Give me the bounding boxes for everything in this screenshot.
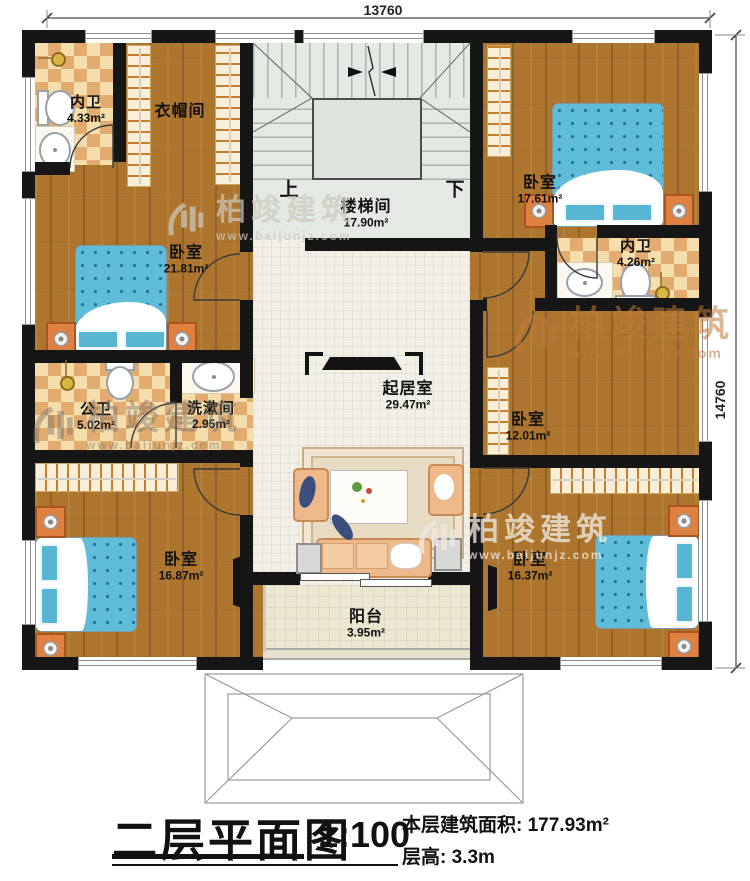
wall bbox=[253, 572, 300, 585]
stair-right-flight bbox=[420, 98, 470, 180]
window bbox=[572, 30, 655, 43]
sofa-cushion bbox=[322, 543, 354, 569]
page-title: 二层平面图 bbox=[112, 804, 352, 869]
bed-pillows bbox=[671, 536, 698, 628]
window bbox=[22, 198, 35, 325]
window bbox=[560, 657, 662, 670]
sliding-door-panel bbox=[360, 579, 432, 587]
wall bbox=[240, 300, 253, 398]
shower-head-icon bbox=[51, 52, 66, 67]
wall bbox=[483, 298, 487, 311]
dimension-top: 13760 bbox=[364, 2, 403, 18]
wall bbox=[470, 300, 483, 468]
sink bbox=[192, 361, 235, 392]
bed-pillows bbox=[36, 538, 63, 631]
stair-up-label: 上 bbox=[279, 175, 298, 202]
bed-bottom-left bbox=[35, 537, 137, 632]
stair-down-label: 下 bbox=[445, 175, 464, 202]
wall bbox=[240, 43, 253, 252]
room-label-wash-room: 洗漱间 2.95m² bbox=[187, 401, 235, 431]
tv-bedroom-bl bbox=[233, 556, 242, 608]
window bbox=[699, 500, 712, 622]
room-label-bedroom-mr: 卧室 12.01m² bbox=[506, 411, 551, 442]
window bbox=[699, 317, 712, 442]
side-table-left bbox=[296, 543, 322, 574]
wall bbox=[305, 238, 470, 251]
bed-sheet bbox=[646, 536, 674, 628]
wall bbox=[170, 363, 182, 403]
wall bbox=[428, 572, 470, 585]
bedroom-tr-closet bbox=[487, 45, 511, 157]
cushion bbox=[434, 474, 454, 500]
table-flowers bbox=[352, 482, 362, 492]
stair-left-flight bbox=[253, 98, 312, 180]
room-label-bedroom-left: 卧室 21.81m² bbox=[164, 244, 209, 275]
nightstand bbox=[668, 505, 700, 537]
wall bbox=[22, 350, 253, 363]
cloakroom-rack-left bbox=[127, 45, 151, 187]
wall bbox=[535, 298, 712, 311]
bath-door-floor-patch bbox=[170, 403, 182, 450]
window bbox=[22, 77, 35, 172]
nightstand bbox=[35, 506, 66, 538]
side-table-right bbox=[434, 538, 462, 571]
room-label-bath-topleft: 内卫 4.33m² bbox=[67, 95, 105, 125]
bed-top-right bbox=[552, 103, 664, 227]
window bbox=[303, 30, 424, 43]
sofa-cushion bbox=[356, 543, 388, 569]
bed-left bbox=[75, 245, 167, 354]
stair-landing bbox=[312, 98, 422, 180]
sofa-pillow bbox=[390, 543, 422, 569]
window bbox=[78, 657, 197, 670]
room-label-bedroom-bl: 卧室 16.87m² bbox=[159, 551, 204, 582]
bedroom-bl-closet bbox=[35, 463, 179, 492]
dimension-right: 14760 bbox=[712, 365, 728, 435]
stair-top-flight bbox=[253, 43, 470, 98]
window bbox=[22, 540, 35, 625]
cloakroom-rack-right bbox=[215, 45, 242, 185]
tv-bedroom-br bbox=[488, 565, 497, 611]
wall bbox=[597, 225, 712, 238]
room-label-public-bath: 公卫 5.02m² bbox=[77, 402, 115, 432]
sink bbox=[566, 268, 603, 297]
room-label-cloakroom: 衣帽间 bbox=[154, 103, 205, 121]
window bbox=[215, 30, 295, 43]
tv-bracket-right bbox=[405, 352, 423, 375]
room-label-living-room: 起居室 29.47m² bbox=[382, 380, 433, 411]
room-label-bedroom-br: 卧室 16.37m² bbox=[508, 551, 553, 582]
window bbox=[85, 30, 152, 43]
wall bbox=[545, 225, 557, 238]
drawing-scale: 1:100 bbox=[318, 814, 410, 856]
balcony-rail bbox=[263, 648, 470, 660]
bed-pillows bbox=[553, 198, 663, 226]
window bbox=[699, 73, 712, 192]
bed-bottom-right bbox=[595, 535, 699, 629]
title-underline bbox=[112, 854, 304, 859]
floor-plan: 13760 14760 内卫 4.33m² 衣帽间 楼梯间 17.90m² 上 … bbox=[0, 0, 750, 881]
wall bbox=[470, 43, 483, 252]
bed-pillows bbox=[76, 325, 166, 353]
room-label-bedroom-tr: 卧室 17.61m² bbox=[518, 174, 563, 205]
tv-bracket-left bbox=[305, 352, 323, 375]
wall bbox=[22, 450, 253, 463]
room-label-stairwell: 楼梯间 17.90m² bbox=[340, 198, 391, 229]
wall bbox=[240, 450, 253, 467]
wall bbox=[483, 238, 545, 251]
room-label-bath-right: 内卫 4.26m² bbox=[617, 239, 655, 269]
roof-outline bbox=[205, 674, 523, 803]
shower-head-icon bbox=[60, 376, 75, 391]
wall bbox=[483, 455, 712, 468]
nightstand bbox=[664, 194, 694, 228]
balcony-rail bbox=[263, 585, 266, 652]
floor-height-label: 层高: 3.3m bbox=[402, 842, 495, 869]
bed-sheet bbox=[60, 538, 88, 631]
room-label-balcony: 阳台 3.95m² bbox=[347, 608, 385, 639]
tv-screen bbox=[322, 357, 402, 370]
floor-area-label: 本层建筑面积: 177.93m² bbox=[402, 810, 609, 837]
wall bbox=[470, 517, 483, 670]
title-underline-thin bbox=[112, 864, 398, 866]
toilet-bowl bbox=[106, 366, 134, 400]
wall bbox=[113, 43, 126, 162]
